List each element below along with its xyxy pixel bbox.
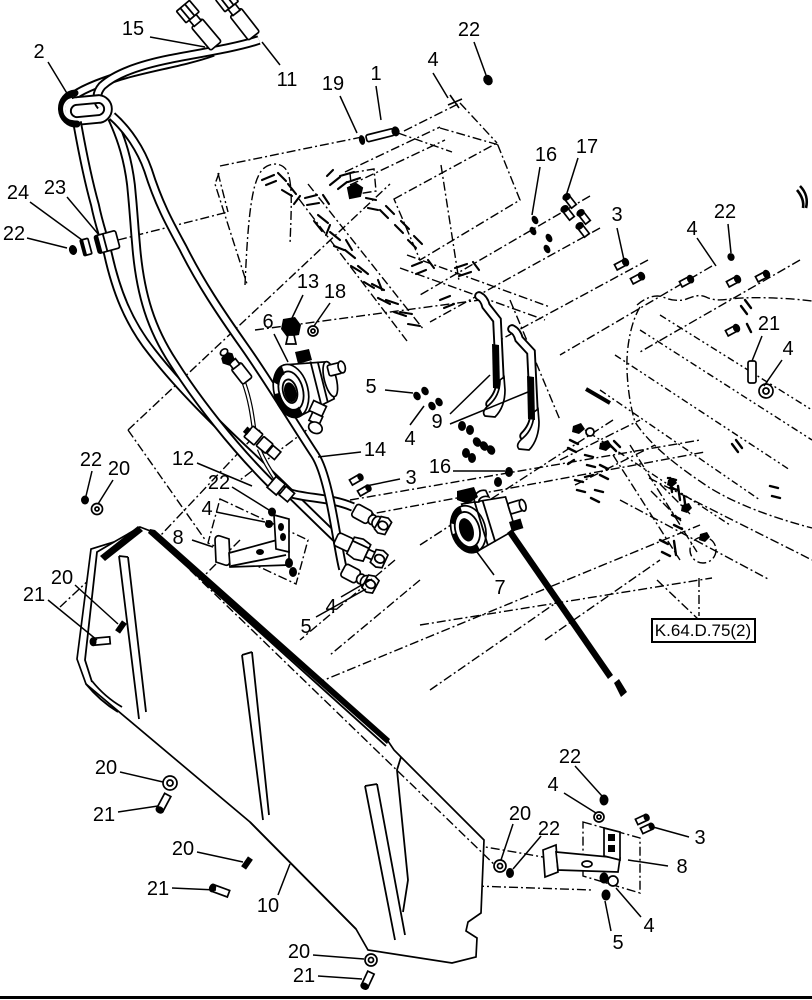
svg-text:22: 22 [3, 223, 25, 245]
svg-text:3: 3 [694, 827, 705, 849]
svg-text:6: 6 [262, 311, 273, 333]
svg-text:12: 12 [172, 448, 194, 470]
svg-text:16: 16 [429, 456, 451, 478]
svg-text:22: 22 [80, 449, 102, 471]
svg-text:21: 21 [147, 878, 169, 900]
svg-text:11: 11 [277, 69, 298, 91]
svg-text:20: 20 [509, 803, 531, 825]
svg-text:21: 21 [758, 313, 780, 335]
svg-text:4: 4 [325, 596, 336, 618]
svg-text:4: 4 [782, 338, 793, 360]
svg-text:21: 21 [93, 804, 115, 826]
svg-text:8: 8 [676, 856, 687, 878]
svg-text:3: 3 [611, 204, 622, 226]
svg-text:20: 20 [108, 458, 130, 480]
svg-text:20: 20 [172, 838, 194, 860]
svg-text:7: 7 [494, 577, 505, 599]
svg-text:4: 4 [427, 49, 438, 71]
svg-text:2: 2 [33, 41, 44, 63]
svg-text:22: 22 [538, 818, 560, 840]
svg-text:4: 4 [547, 774, 558, 796]
svg-text:4: 4 [201, 498, 212, 520]
svg-text:16: 16 [535, 144, 557, 166]
svg-text:17: 17 [576, 136, 598, 158]
svg-text:23: 23 [44, 177, 66, 199]
svg-text:1: 1 [370, 63, 381, 85]
svg-text:5: 5 [612, 932, 623, 954]
svg-text:18: 18 [324, 281, 346, 303]
svg-text:5: 5 [300, 616, 311, 638]
svg-text:5: 5 [365, 376, 376, 398]
svg-text:10: 10 [257, 895, 279, 917]
svg-text:14: 14 [364, 439, 386, 461]
svg-text:19: 19 [322, 73, 344, 95]
svg-text:3: 3 [405, 467, 416, 489]
svg-text:4: 4 [686, 218, 697, 240]
svg-text:4: 4 [404, 428, 415, 450]
svg-text:22: 22 [714, 201, 736, 223]
svg-text:4: 4 [643, 915, 654, 937]
svg-text:21: 21 [23, 584, 45, 606]
svg-text:8: 8 [172, 527, 183, 549]
svg-text:22: 22 [458, 19, 480, 41]
svg-text:22: 22 [208, 472, 230, 494]
svg-text:20: 20 [51, 567, 73, 589]
svg-text:22: 22 [559, 746, 581, 768]
svg-text:21: 21 [293, 965, 315, 987]
svg-text:9: 9 [431, 411, 442, 433]
svg-text:24: 24 [7, 182, 29, 204]
svg-text:20: 20 [288, 941, 310, 963]
svg-text:13: 13 [297, 271, 319, 293]
svg-text:15: 15 [122, 18, 144, 40]
svg-text:K.64.D.75(2): K.64.D.75(2) [655, 621, 751, 640]
svg-text:20: 20 [95, 757, 117, 779]
